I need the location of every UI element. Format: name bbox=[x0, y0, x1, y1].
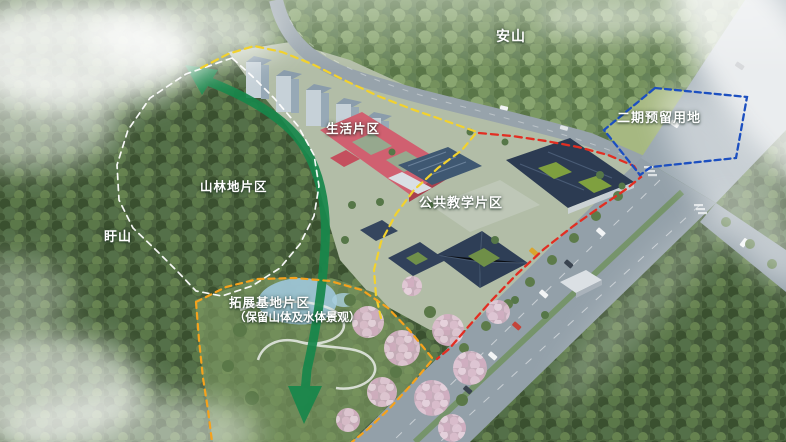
label-expansion-zone: 拓展基地片区 bbox=[229, 297, 310, 310]
label-expansion-note: （保留山体及水体景观） bbox=[234, 313, 361, 325]
site-rendering-base bbox=[0, 0, 786, 442]
label-life-zone: 生活片区 bbox=[326, 123, 380, 136]
label-phase2-reserved-land: 二期预留用地 bbox=[617, 111, 701, 124]
label-anshan-mountain: 安山 bbox=[496, 29, 526, 43]
campus-masterplan-aerial-view: 安山 盱山 二期预留用地 生活片区 山林地片区 公共教学片区 拓展基地片区 （保… bbox=[0, 0, 786, 442]
label-teaching-zone: 公共教学片区 bbox=[419, 196, 503, 209]
label-forest-zone: 山林地片区 bbox=[200, 181, 268, 194]
label-xushan-mountain: 盱山 bbox=[104, 230, 132, 243]
